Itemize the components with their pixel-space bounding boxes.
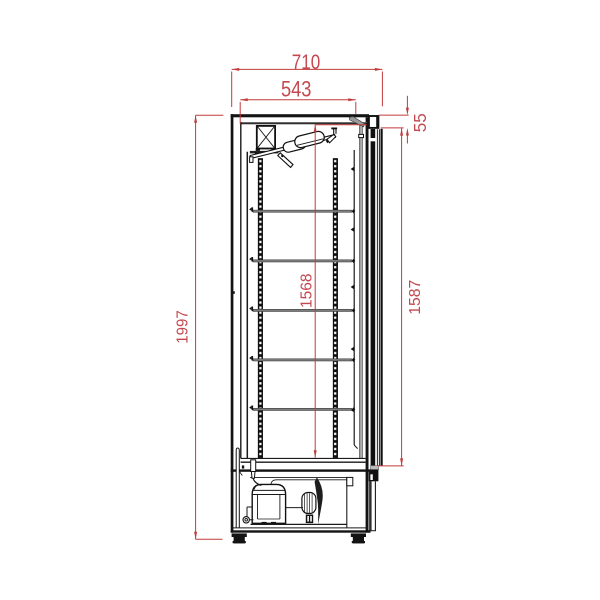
svg-text:543: 543 [281, 77, 312, 102]
svg-text:1997: 1997 [174, 310, 191, 344]
svg-text:1587: 1587 [407, 280, 424, 315]
svg-text:55: 55 [410, 113, 430, 132]
svg-text:1568: 1568 [299, 273, 316, 308]
svg-text:710: 710 [292, 50, 321, 74]
